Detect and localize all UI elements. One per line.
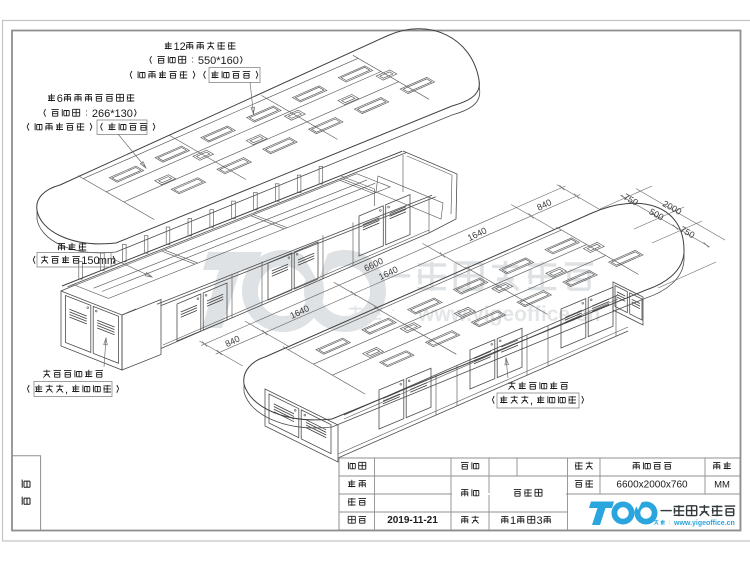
svg-text:6: 6: [57, 93, 63, 105]
svg-text:,: ,: [530, 395, 533, 407]
svg-text:,: ,: [65, 384, 68, 396]
svg-text:2019-11-21: 2019-11-21: [387, 515, 438, 526]
svg-text:MM: MM: [714, 480, 730, 491]
svg-text:3: 3: [537, 515, 543, 527]
svg-text:1: 1: [510, 515, 516, 527]
svg-text:www.yigeoffice.cn: www.yigeoffice.cn: [673, 520, 735, 527]
svg-text:550*160: 550*160: [198, 55, 239, 67]
svg-text:6600x2000x760: 6600x2000x760: [616, 480, 688, 491]
svg-text:266*130: 266*130: [92, 108, 133, 120]
svg-text:12: 12: [174, 41, 186, 53]
